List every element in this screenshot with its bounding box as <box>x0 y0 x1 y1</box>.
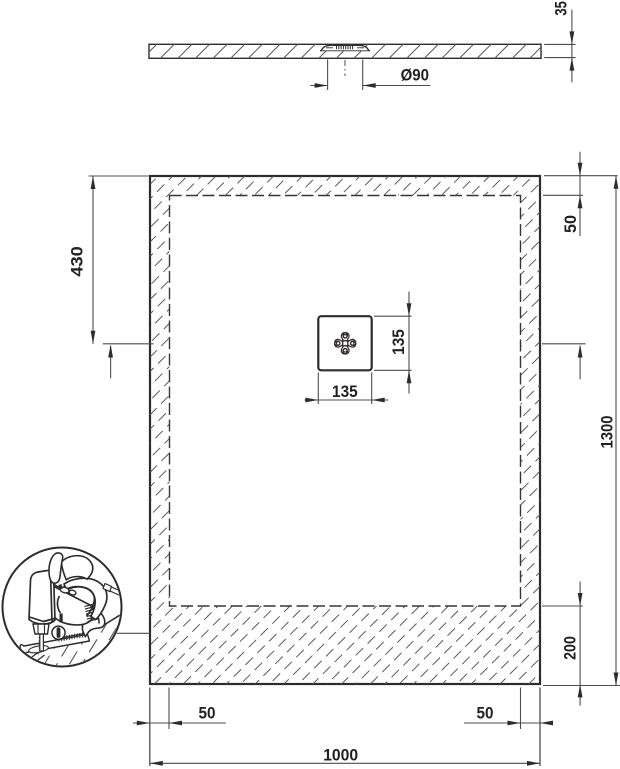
svg-text:50: 50 <box>199 703 216 722</box>
svg-text:Ø90: Ø90 <box>401 66 429 85</box>
svg-text:50: 50 <box>477 703 494 722</box>
svg-text:35: 35 <box>552 1 571 16</box>
svg-text:135: 135 <box>332 382 358 401</box>
svg-text:1300: 1300 <box>598 416 617 449</box>
svg-text:430: 430 <box>67 246 86 276</box>
svg-text:50: 50 <box>561 215 580 233</box>
svg-text:200: 200 <box>560 636 579 660</box>
svg-text:135: 135 <box>389 329 408 355</box>
svg-text:1000: 1000 <box>323 746 358 765</box>
